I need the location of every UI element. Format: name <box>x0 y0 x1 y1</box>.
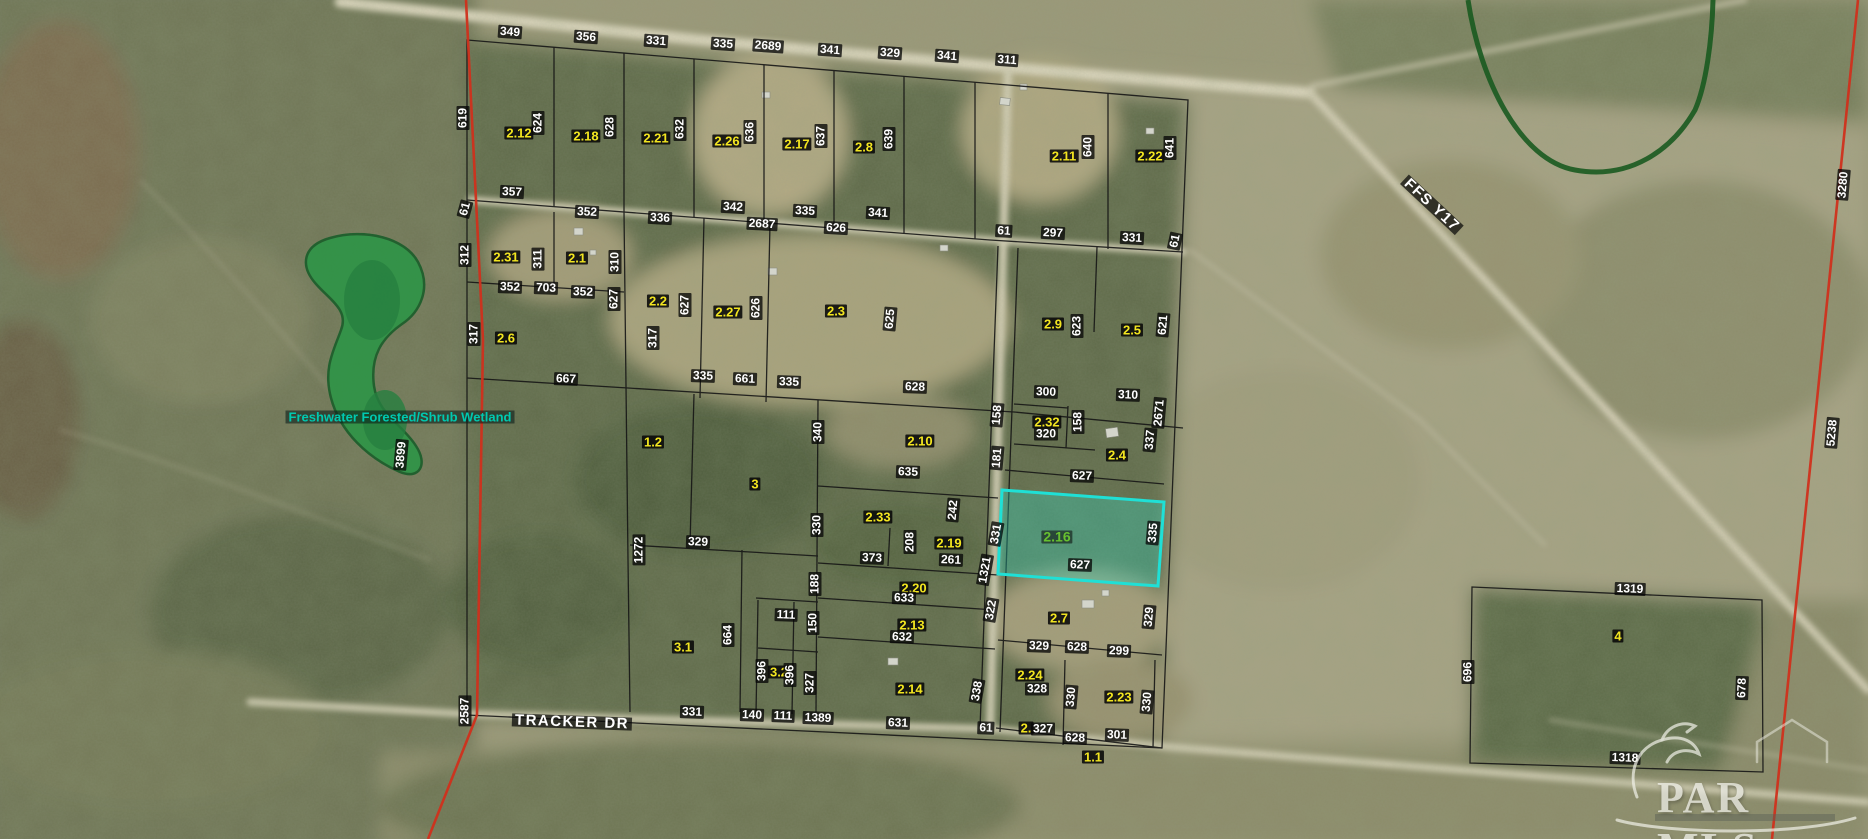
parcel-number-label: 2.7 <box>1048 612 1070 625</box>
dimension-label: 329 <box>686 535 710 549</box>
dimension-label: 625 <box>882 306 897 331</box>
dimension-label: 330 <box>811 513 824 537</box>
dimension-label: 310 <box>609 250 622 274</box>
dimension-label: 621 <box>1155 312 1170 337</box>
wetland-label: Freshwater Forested/Shrub Wetland <box>286 411 515 424</box>
dimension-label: 311 <box>532 247 545 270</box>
dimension-label: 336 <box>648 211 673 225</box>
dimension-label: 335 <box>1145 520 1160 545</box>
dimension-label: 150 <box>807 611 820 635</box>
parcel-number-label: 2.23 <box>1104 691 1133 704</box>
dimension-label: 641 <box>1164 136 1177 160</box>
parcel-number-label: 2.6 <box>495 332 517 345</box>
dimension-label: 352 <box>575 205 600 219</box>
dimension-label: 628 <box>1063 731 1087 745</box>
dimension-label: 329 <box>878 46 903 61</box>
dimension-label: 341 <box>866 206 891 220</box>
dimension-label: 327 <box>1031 723 1055 736</box>
dimension-label: 331 <box>644 34 669 49</box>
dimension-label: 338 <box>969 678 986 704</box>
dimension-label: 627 <box>679 293 692 317</box>
dimension-label: 635 <box>896 465 920 479</box>
parcel-number-label: 1.1 <box>1082 751 1104 764</box>
dimension-label: 5238 <box>1824 417 1840 449</box>
dimension-label: 111 <box>771 709 794 723</box>
parcel-number-label: 2.4 <box>1106 449 1128 462</box>
dimension-label: 331 <box>680 705 704 719</box>
dimension-label: 342 <box>721 200 746 214</box>
dimension-label: 327 <box>804 671 817 695</box>
dimension-label: 61 <box>1167 231 1183 251</box>
dimension-label: 623 <box>1071 314 1084 338</box>
dimension-label: 627 <box>608 287 621 311</box>
dimension-label: 3280 <box>1835 169 1851 201</box>
parcel-number-label: 3.1 <box>672 641 694 654</box>
parcel-number-label: 2.3 <box>825 305 847 318</box>
parcel-number-label: 2.26 <box>712 135 741 148</box>
dimension-label: 330 <box>1139 689 1154 714</box>
dimension-label: 626 <box>824 221 849 235</box>
dimension-label: 335 <box>793 204 818 218</box>
dimension-label: 349 <box>498 25 523 40</box>
dimension-label: 310 <box>1116 388 1140 402</box>
dimension-label: 619 <box>457 106 470 130</box>
dimension-label: 632 <box>890 630 914 644</box>
dimension-label: 356 <box>574 30 599 45</box>
parcel-number-label: 2.1 <box>566 252 588 265</box>
dimension-label: 2687 <box>746 217 777 232</box>
dimension-label: 158 <box>989 402 1004 427</box>
parcel-number-label: 2.22 <box>1135 150 1164 163</box>
dimension-label: 664 <box>722 623 735 647</box>
parcel-number-label: 3 <box>749 478 760 491</box>
dimension-label: 61 <box>995 224 1013 238</box>
parcel-number-label: 2.19 <box>934 537 963 550</box>
dimension-label: 188 <box>809 572 822 596</box>
dimension-label: 637 <box>815 124 828 148</box>
dimension-label: 632 <box>674 117 687 141</box>
dimension-label: 633 <box>892 591 916 605</box>
dimension-label: 341 <box>935 49 960 64</box>
dimension-label: 628 <box>1065 640 1089 654</box>
dimension-label: 2671 <box>1151 397 1167 429</box>
map-labels-layer: 34935633133526893413293413116192.126242.… <box>0 0 1868 839</box>
parcel-number-label: 2.24 <box>1015 669 1044 682</box>
dimension-label: 331 <box>988 521 1005 547</box>
dimension-label: 301 <box>1105 728 1129 742</box>
dimension-label: 396 <box>784 663 797 687</box>
parcel-number-label: 2.10 <box>905 435 934 448</box>
dimension-label: 3899 <box>393 439 409 471</box>
dimension-label: 340 <box>812 420 825 444</box>
parcel-number-label: 2.9 <box>1042 318 1064 331</box>
dimension-label: 311 <box>995 53 1019 68</box>
dimension-label: 242 <box>945 497 960 522</box>
dimension-label: 628 <box>604 115 617 139</box>
dimension-label: 640 <box>1082 135 1095 159</box>
dimension-label: 352 <box>571 285 595 299</box>
dimension-label: 335 <box>691 369 715 383</box>
dimension-label: 335 <box>777 375 801 389</box>
parcel-number-label: 2.33 <box>863 511 892 524</box>
dimension-label: 396 <box>756 659 769 683</box>
road-name-label: TRACKER DR <box>512 713 633 730</box>
dimension-label: 297 <box>1041 226 1066 240</box>
dimension-label: 636 <box>744 120 757 144</box>
dimension-label: 322 <box>983 597 1000 623</box>
dimension-label: 373 <box>860 551 884 565</box>
dimension-label: 1318 <box>1609 751 1640 765</box>
dimension-label: 667 <box>554 372 578 386</box>
aerial-map[interactable]: 34935633133526893413293413116192.126242.… <box>0 0 1868 839</box>
dimension-label: 331 <box>1120 231 1145 245</box>
parcel-number-label: 4 <box>1612 630 1623 643</box>
road-name-label: FFS Y17 <box>1400 175 1464 236</box>
dimension-label: 678 <box>1735 676 1749 700</box>
dimension-label: 335 <box>711 37 736 52</box>
dimension-label: 300 <box>1034 385 1058 399</box>
parcel-number-label: 2.11 <box>1050 150 1079 163</box>
parcel-number-label: 1.2 <box>642 436 664 449</box>
dimension-label: 337 <box>1142 427 1157 452</box>
dimension-label: 661 <box>733 372 757 386</box>
dimension-label: 703 <box>534 281 558 295</box>
dimension-label: 639 <box>883 127 896 151</box>
parcel-number-label: 2.8 <box>853 141 875 154</box>
dimension-label: 208 <box>904 530 917 554</box>
parcel-number-label: 2.27 <box>713 306 742 319</box>
dimension-label: 299 <box>1107 644 1131 658</box>
dimension-label: 627 <box>1070 469 1094 483</box>
dimension-label: 181 <box>989 445 1004 470</box>
dimension-label: 1321 <box>976 554 994 586</box>
dimension-label: 140 <box>740 708 764 722</box>
highlighted-parcel-label: 2.16 <box>1041 531 1072 544</box>
dimension-label: 330 <box>1063 684 1078 709</box>
parcel-number-label: 2.17 <box>782 138 811 151</box>
dimension-label: 329 <box>1027 639 1051 653</box>
dimension-label: 1389 <box>802 711 833 725</box>
dimension-label: 631 <box>886 716 910 730</box>
dimension-label: 328 <box>1025 683 1049 696</box>
parcel-number-label: 2.14 <box>895 683 924 696</box>
dimension-label: 352 <box>498 280 522 294</box>
dimension-label: 628 <box>903 380 927 394</box>
dimension-label: 312 <box>459 243 472 267</box>
parcel-number-label: 2.5 <box>1121 324 1143 337</box>
dimension-label: 61 <box>456 199 473 219</box>
dimension-label: 2587 <box>459 696 472 727</box>
dimension-label: 696 <box>1462 660 1475 684</box>
dimension-label: 357 <box>500 185 525 199</box>
dimension-label: 261 <box>939 553 963 567</box>
dimension-label: 2689 <box>752 38 784 53</box>
dimension-label: 158 <box>1072 410 1085 434</box>
parcel-number-label: 2.2 <box>647 295 669 308</box>
parcel-number-label: 2.18 <box>571 130 600 143</box>
dimension-label: 1272 <box>633 535 646 566</box>
dimension-label: 627 <box>1068 558 1092 572</box>
dimension-label: 329 <box>1141 604 1156 629</box>
dimension-label: 341 <box>818 43 843 58</box>
parcel-number-label: 2.21 <box>641 132 670 145</box>
dimension-label: 1319 <box>1614 582 1645 596</box>
dimension-label: 626 <box>750 296 763 320</box>
parcel-number-label: 2.12 <box>504 127 533 140</box>
dimension-label: 320 <box>1034 428 1058 441</box>
dimension-label: 111 <box>774 608 797 622</box>
dimension-label: 317 <box>468 322 481 346</box>
parcel-number-label: 2.31 <box>491 251 520 264</box>
dimension-label: 317 <box>647 326 660 350</box>
dimension-label: 624 <box>532 111 545 135</box>
dimension-label: 61 <box>977 721 995 735</box>
